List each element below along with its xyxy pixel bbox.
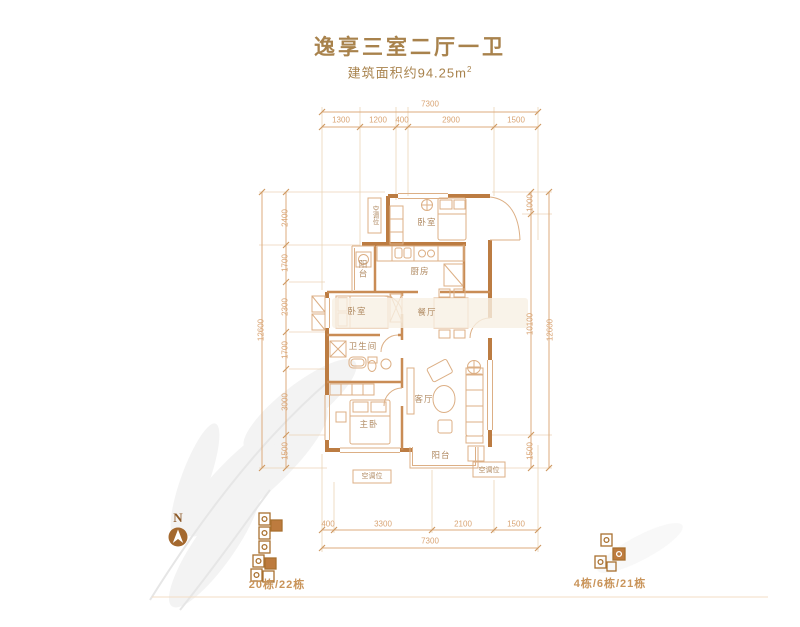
dim-left-seg-1: 2400 xyxy=(281,209,290,227)
area-text: 建筑面积约94.25m xyxy=(348,66,467,81)
dim-bottom-overall: 7300 xyxy=(421,537,439,546)
dim-bottom-seg-1: 400 xyxy=(321,520,334,529)
dim-right-seg-2: 10100 xyxy=(526,313,535,335)
dim-left-seg-4: 1700 xyxy=(281,341,290,359)
room-label-living: 客厅 xyxy=(414,393,433,405)
north-label: N xyxy=(173,510,182,526)
room-label-kitchen: 厨房 xyxy=(410,265,429,277)
room-label-dining: 餐厅 xyxy=(417,306,436,318)
dim-top-seg-3: 400 xyxy=(395,116,408,125)
room-label-bedroom-top: 卧室 xyxy=(417,216,436,228)
room-label-balcony: 阳台 xyxy=(431,449,450,461)
dim-right-seg-1: 1000 xyxy=(526,194,535,212)
dim-top-seg-1: 1300 xyxy=(332,116,350,125)
keyplan-left xyxy=(251,513,282,582)
dim-right-seg-3: 1500 xyxy=(526,442,535,460)
room-label-ac-top: 空调位 xyxy=(369,205,379,225)
dim-left-seg-6: 1500 xyxy=(281,442,290,460)
dim-left-overall: 12600 xyxy=(257,319,266,341)
floorplan-graphic xyxy=(0,0,800,627)
keyplan-left-label: 20栋/22栋 xyxy=(249,576,306,592)
plan-title: 逸享三室二厅一卫 xyxy=(314,31,506,61)
room-label-bathroom: 卫生间 xyxy=(349,340,378,352)
dim-top-seg-2: 1200 xyxy=(369,116,387,125)
room-label-kitchen-balcony: 阳台 xyxy=(357,260,369,279)
dim-top-overall: 7300 xyxy=(421,100,439,109)
dim-bottom-seg-2: 3300 xyxy=(374,520,392,529)
dim-left-seg-2: 1700 xyxy=(281,254,290,272)
dimension-ticks xyxy=(259,109,552,551)
room-label-bedroom-middle: 卧室 xyxy=(347,305,366,317)
room-label-master-bedroom: 主卧 xyxy=(359,418,378,430)
dimension-lines xyxy=(262,112,549,548)
room-label-ac-bottom-right: 空调位 xyxy=(479,465,500,475)
dim-bottom-seg-4: 1500 xyxy=(507,520,525,529)
north-arrow-icon xyxy=(169,528,188,547)
dim-left-seg-5: 3000 xyxy=(281,393,290,411)
floorplan-page: { "header": { "title": "逸享三室二厅一卫", "area… xyxy=(0,0,800,627)
area-label: 建筑面积约94.25m2 xyxy=(348,63,473,82)
extension-lines xyxy=(259,107,552,552)
dim-top-seg-5: 1500 xyxy=(507,116,525,125)
dim-top-seg-4: 2900 xyxy=(442,116,460,125)
room-label-ac-bottom-left: 空调位 xyxy=(362,471,383,481)
keyplan-right-label: 4栋/6栋/21栋 xyxy=(574,575,647,591)
dim-bottom-seg-3: 2100 xyxy=(454,520,472,529)
area-superscript: 2 xyxy=(467,65,472,74)
dim-right-overall: 12600 xyxy=(546,319,555,341)
dim-left-seg-3: 2300 xyxy=(281,298,290,316)
